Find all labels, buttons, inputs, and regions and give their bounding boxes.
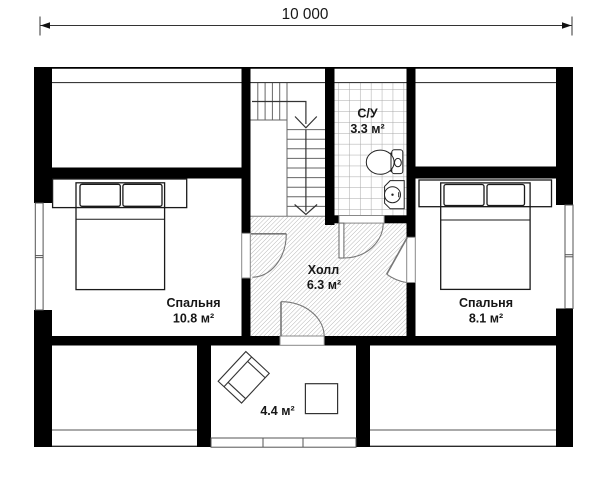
svg-text:Спальня: Спальня (167, 296, 221, 310)
svg-text:6.3 м²: 6.3 м² (307, 278, 341, 292)
svg-text:10.8 м²: 10.8 м² (173, 312, 214, 326)
svg-text:С/У: С/У (357, 107, 378, 121)
svg-text:8.1 м²: 8.1 м² (469, 312, 503, 326)
svg-text:Холл: Холл (308, 263, 339, 277)
svg-text:4.4 м²: 4.4 м² (260, 404, 294, 418)
svg-text:3.3 м²: 3.3 м² (350, 122, 384, 136)
svg-text:Спальня: Спальня (459, 296, 513, 310)
svg-text:10 000: 10 000 (282, 6, 329, 23)
